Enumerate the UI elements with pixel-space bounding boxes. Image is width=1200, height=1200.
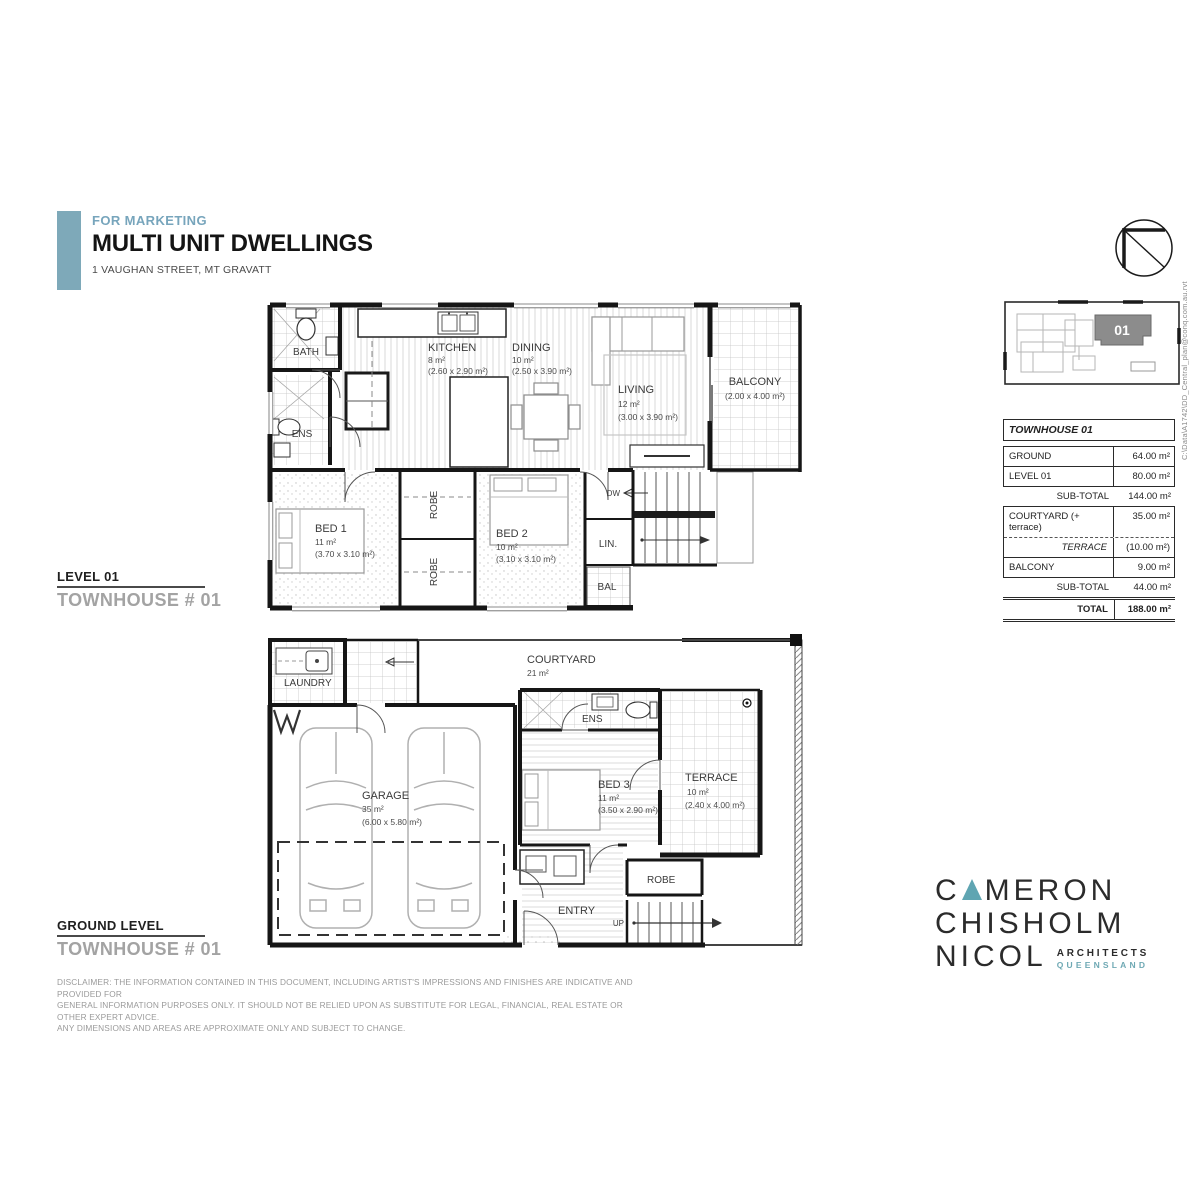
table-row: LEVEL 01 80.00 m²: [1004, 467, 1174, 486]
bed3-furniture: [522, 770, 600, 830]
bed2-label: BED 2: [496, 528, 528, 540]
floor-plan-ground: LAUNDRY COURTYARD 21 m² ENS BED 3 11 m² …: [262, 628, 807, 968]
header: FOR MARKETING MULTI UNIT DWELLINGS 1 VAU…: [92, 213, 373, 276]
bed1-label: BED 1: [315, 523, 347, 535]
svg-text:12 m²: 12 m²: [618, 399, 640, 409]
project-address: 1 VAUGHAN STREET, MT GRAVATT: [92, 264, 373, 276]
svg-text:10 m²: 10 m²: [496, 542, 518, 552]
svg-text:(3.00 x 3.90 m²): (3.00 x 3.90 m²): [618, 412, 678, 422]
logo-line-cameron: CMERON: [935, 874, 1149, 907]
robe-label: ROBE: [429, 491, 440, 520]
garage-cars: [300, 728, 480, 928]
up-label: UP: [613, 919, 624, 928]
page-title: MULTI UNIT DWELLINGS: [92, 230, 373, 258]
logo-tagline: ARCHITECTS QUEENSLAND: [1057, 948, 1149, 973]
kitchen-label: KITCHEN: [428, 342, 476, 354]
svg-text:11 m²: 11 m²: [598, 793, 619, 803]
svg-text:11 m²: 11 m²: [315, 537, 336, 547]
ground-caption-subtitle: TOWNHOUSE # 01: [57, 939, 257, 960]
linen-label: LIN.: [599, 539, 617, 550]
courtyard-label: COURTYARD: [527, 654, 596, 666]
table-subtotal-row: SUB-TOTAL 144.00 m²: [1003, 487, 1175, 506]
bed3-label: BED 3: [598, 779, 630, 791]
fence-post: [790, 634, 802, 646]
table-row: GROUND 64.00 m²: [1004, 447, 1174, 467]
header-eyebrow: FOR MARKETING: [92, 213, 373, 228]
svg-text:(6.00 x 5.80 m²): (6.00 x 5.80 m²): [362, 817, 422, 827]
svg-text:(3.10 x 3.10 m²): (3.10 x 3.10 m²): [496, 554, 556, 564]
key-plan: 01: [1003, 300, 1181, 393]
terrace-label: TERRACE: [685, 772, 738, 784]
svg-text:10 m²: 10 m²: [687, 787, 709, 797]
file-reference: C:\Data\A1742\DD_Central_plan@conq.com.a…: [1180, 200, 1189, 460]
entry-bench: [520, 850, 584, 884]
level01-caption-title: LEVEL 01: [57, 569, 205, 588]
svg-text:35 m²: 35 m²: [362, 804, 384, 814]
living-label: LIVING: [618, 384, 654, 396]
svg-text:(2.40 x 4.00 m²): (2.40 x 4.00 m²): [685, 800, 745, 810]
table-row: COURTYARD (+ terrace) 35.00 m²: [1004, 507, 1174, 538]
robe-label: ROBE: [429, 558, 440, 587]
svg-text:21 m²: 21 m²: [527, 668, 549, 678]
dining-label: DINING: [512, 342, 551, 354]
svg-text:10 m²: 10 m²: [512, 355, 534, 365]
marketing-floor-plan-page: FOR MARKETING MULTI UNIT DWELLINGS 1 VAU…: [0, 0, 1200, 1200]
bal-label: BAL: [598, 582, 617, 593]
architect-logo: CMERON CHISHOLM NICOL ARCHITECTS QUEENSL…: [935, 874, 1149, 973]
svg-text:(2.00 x 4.00 m²): (2.00 x 4.00 m²): [725, 391, 785, 401]
logo-line-nicol: NICOL: [935, 940, 1047, 973]
table-row: BALCONY 9.00 m²: [1004, 558, 1174, 577]
architect-circle-logo: [1112, 216, 1176, 285]
bath-label: BATH: [293, 347, 319, 358]
garage-label: GARAGE: [362, 790, 409, 802]
floor-plan-level01: BATH ENS KITCHEN 8 m² (2.60 x 2.90 m²) D…: [262, 297, 807, 622]
courtyard-fence: [795, 640, 802, 945]
level01-caption: LEVEL 01 TOWNHOUSE # 01: [57, 569, 257, 611]
svg-text:(3.70 x 3.10 m²): (3.70 x 3.10 m²): [315, 549, 375, 559]
table-row: TERRACE (10.00 m²): [1004, 538, 1174, 558]
robe-label: ROBE: [647, 875, 676, 886]
table-subtotal-row: SUB-TOTAL 44.00 m²: [1003, 578, 1175, 600]
svg-text:(3.50 x 2.90 m²): (3.50 x 2.90 m²): [598, 805, 658, 815]
key-plan-unit-label: 01: [1114, 322, 1130, 338]
laundry-label: LAUNDRY: [284, 678, 332, 689]
stairs: [624, 472, 753, 563]
level01-caption-subtitle: TOWNHOUSE # 01: [57, 590, 257, 611]
triangle-a-icon: [962, 879, 982, 900]
svg-text:(2.60 x 2.90 m²): (2.60 x 2.90 m²): [428, 366, 488, 376]
svg-text:8 m²: 8 m²: [428, 355, 445, 365]
area-table-title: TOWNHOUSE 01: [1003, 419, 1175, 441]
logo-line-chisholm: CHISHOLM: [935, 907, 1149, 940]
svg-text:(2.50 x 3.90 m²): (2.50 x 3.90 m²): [512, 366, 572, 376]
ens-label: ENS: [582, 714, 603, 725]
disclaimer: DISCLAIMER: THE INFORMATION CONTAINED IN…: [57, 977, 637, 1035]
dw-label: DW: [607, 489, 621, 498]
ens-label: ENS: [292, 429, 313, 440]
balcony-label: BALCONY: [729, 376, 782, 388]
washer-w-icon: [274, 710, 300, 732]
area-table: TOWNHOUSE 01 GROUND 64.00 m² LEVEL 01 80…: [1003, 419, 1175, 622]
circle-n-icon: [1112, 216, 1176, 280]
entry-label: ENTRY: [558, 905, 596, 917]
table-total-row: TOTAL 188.00 m²: [1003, 600, 1175, 622]
ground-caption-title: GROUND LEVEL: [57, 918, 205, 937]
ground-caption: GROUND LEVEL TOWNHOUSE # 01: [57, 918, 257, 960]
header-accent-bar: [57, 211, 81, 290]
stairs: [627, 900, 722, 945]
